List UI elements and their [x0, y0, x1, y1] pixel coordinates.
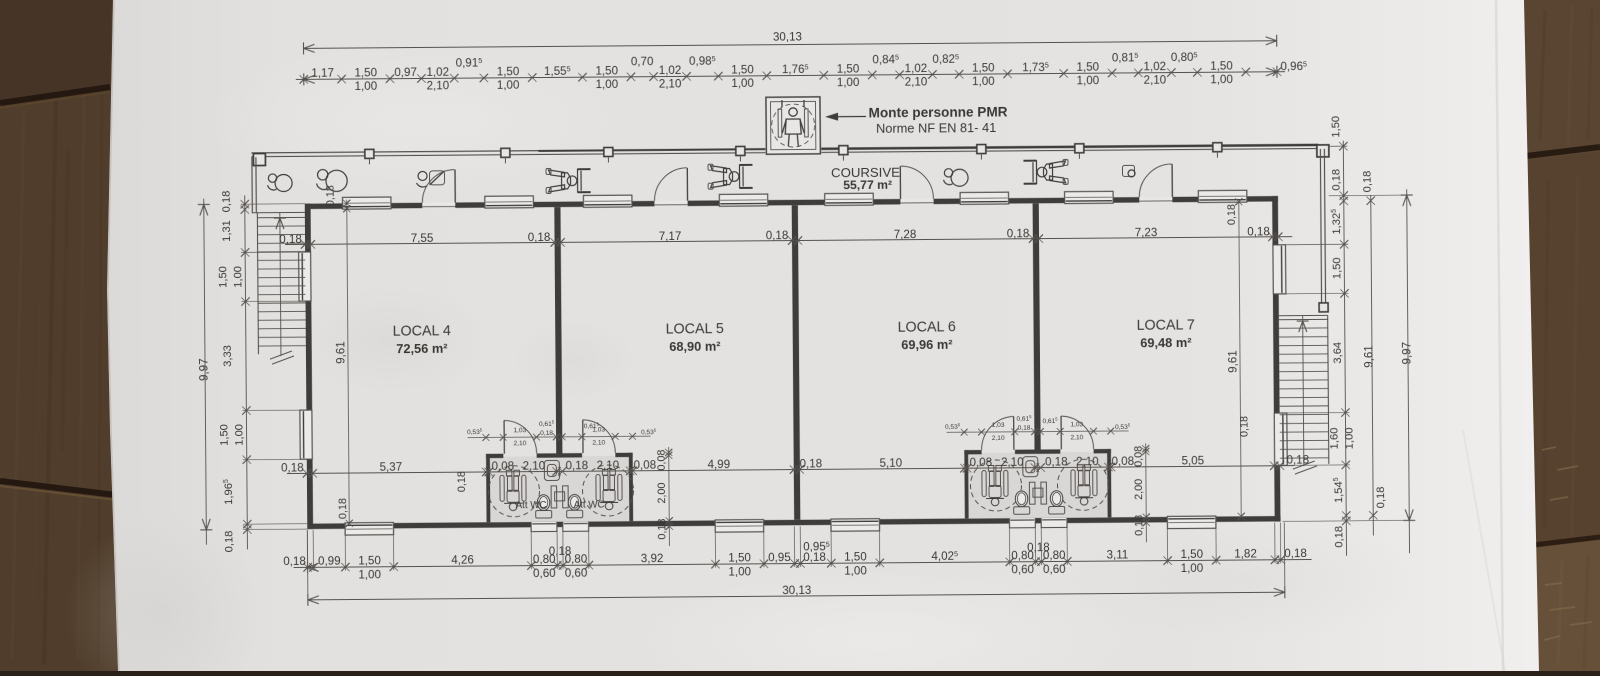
svg-text:0,95: 0,95 [768, 551, 791, 564]
svg-text:0,18: 0,18 [456, 471, 468, 492]
svg-text:1,02: 1,02 [426, 66, 449, 79]
svg-text:1,02: 1,02 [905, 62, 928, 75]
svg-text:9,97: 9,97 [197, 358, 210, 381]
svg-text:0,18: 0,18 [1018, 425, 1031, 432]
svg-text:0,08: 0,08 [491, 460, 514, 473]
svg-text:0,18: 0,18 [1247, 225, 1270, 238]
svg-text:2,10: 2,10 [992, 435, 1005, 442]
svg-text:1,00: 1,00 [1181, 562, 1204, 575]
svg-text:1,00: 1,00 [837, 76, 860, 89]
svg-text:1,02: 1,02 [1143, 60, 1166, 73]
svg-text:7,55: 7,55 [411, 232, 434, 245]
svg-text:Norme NF EN 81- 41: Norme NF EN 81- 41 [876, 120, 996, 136]
svg-text:0,60: 0,60 [1011, 563, 1034, 576]
svg-text:1,03: 1,03 [513, 427, 526, 434]
svg-text:1,50: 1,50 [217, 266, 229, 288]
svg-text:2,10: 2,10 [1144, 74, 1167, 87]
svg-text:0,18: 0,18 [1286, 453, 1309, 466]
svg-text:0,18: 0,18 [1133, 515, 1145, 536]
svg-text:1,03: 1,03 [592, 427, 605, 434]
svg-text:2,10: 2,10 [513, 440, 526, 447]
svg-text:1,50: 1,50 [358, 554, 381, 567]
svg-text:7,17: 7,17 [659, 230, 682, 243]
svg-text:0,18: 0,18 [549, 545, 572, 558]
svg-text:1,03: 1,03 [992, 422, 1005, 429]
svg-text:1,50: 1,50 [1331, 257, 1343, 279]
svg-text:0,18: 0,18 [656, 519, 668, 540]
svg-text:1,00: 1,00 [1077, 74, 1100, 87]
svg-text:0,18: 0,18 [1333, 526, 1345, 548]
svg-text:0,60: 0,60 [533, 567, 556, 580]
svg-text:55,77 m²: 55,77 m² [843, 178, 892, 192]
svg-text:2,10: 2,10 [1076, 455, 1099, 468]
svg-text:3,11: 3,11 [1107, 549, 1129, 562]
svg-text:1,50: 1,50 [1181, 548, 1204, 561]
svg-text:0,99: 0,99 [318, 555, 341, 568]
svg-text:Monte personne PMR: Monte personne PMR [869, 104, 1008, 120]
svg-text:0,18: 0,18 [799, 457, 822, 470]
svg-text:1,60: 1,60 [1329, 428, 1341, 450]
svg-text:2,10: 2,10 [592, 440, 605, 447]
svg-text:0,18: 0,18 [223, 531, 235, 553]
svg-text:69,48 m²: 69,48 m² [1140, 335, 1191, 350]
svg-text:LOCAL 6: LOCAL 6 [898, 319, 956, 335]
svg-text:5,10: 5,10 [879, 457, 902, 470]
svg-text:0,97: 0,97 [394, 66, 417, 79]
svg-text:1,00: 1,00 [1210, 73, 1233, 86]
svg-text:Att WC: Att WC [574, 500, 605, 511]
svg-text:72,56 m²: 72,56 m² [396, 341, 447, 356]
svg-text:9,61: 9,61 [1226, 350, 1239, 373]
svg-text:1,00: 1,00 [232, 266, 244, 288]
svg-text:3,33: 3,33 [222, 345, 234, 367]
svg-text:1,17: 1,17 [311, 67, 334, 80]
svg-text:0,18: 0,18 [1375, 487, 1387, 509]
svg-text:30,13: 30,13 [782, 584, 811, 597]
svg-text:1,50: 1,50 [1210, 60, 1233, 73]
svg-text:1,00: 1,00 [1344, 427, 1356, 449]
svg-text:0,18: 0,18 [1007, 227, 1030, 240]
svg-text:0,08: 0,08 [633, 458, 656, 471]
svg-text:1,50: 1,50 [1330, 116, 1342, 138]
svg-text:5,37: 5,37 [379, 460, 402, 473]
svg-text:1,31: 1,31 [221, 220, 233, 242]
svg-text:9,61: 9,61 [1362, 345, 1375, 368]
svg-text:2,10: 2,10 [659, 77, 682, 90]
svg-text:LOCAL 4: LOCAL 4 [393, 323, 451, 339]
svg-text:4,99: 4,99 [707, 458, 730, 471]
svg-text:2,10: 2,10 [1001, 456, 1024, 469]
svg-text:3,64: 3,64 [1332, 342, 1344, 364]
svg-text:2,10: 2,10 [522, 459, 545, 472]
svg-text:0,18: 0,18 [1362, 171, 1374, 193]
svg-text:30,13: 30,13 [773, 30, 802, 43]
svg-text:1,50: 1,50 [595, 65, 618, 78]
svg-text:0,18: 0,18 [1284, 547, 1307, 560]
svg-text:2,00: 2,00 [656, 483, 668, 504]
svg-text:0,18: 0,18 [337, 498, 349, 519]
svg-text:0,70: 0,70 [631, 55, 654, 68]
svg-text:5,05: 5,05 [1181, 454, 1204, 467]
svg-text:0,18: 0,18 [283, 555, 306, 568]
svg-text:0,08: 0,08 [1133, 446, 1145, 467]
svg-text:0,18: 0,18 [565, 459, 588, 472]
svg-text:7,23: 7,23 [1135, 226, 1158, 239]
svg-text:1,03: 1,03 [1070, 421, 1083, 428]
svg-text:0,18: 0,18 [1027, 541, 1050, 554]
svg-text:0,18: 0,18 [1045, 455, 1068, 468]
svg-text:0,18: 0,18 [281, 461, 304, 474]
svg-text:1,00: 1,00 [595, 78, 618, 91]
svg-text:1,50: 1,50 [972, 62, 995, 75]
svg-text:1,82: 1,82 [1234, 548, 1257, 561]
svg-text:Att WC: Att WC [516, 500, 547, 511]
svg-text:4,26: 4,26 [451, 554, 474, 567]
svg-text:69,96 m²: 69,96 m² [901, 337, 952, 352]
svg-text:0,18: 0,18 [221, 191, 233, 213]
svg-text:0,60: 0,60 [565, 567, 588, 580]
svg-text:1,50: 1,50 [837, 63, 860, 76]
svg-text:0,18: 0,18 [1238, 416, 1250, 437]
svg-text:1,00: 1,00 [497, 79, 520, 92]
svg-text:3,92: 3,92 [641, 552, 664, 565]
svg-text:1,00: 1,00 [233, 424, 245, 446]
svg-text:1,00: 1,00 [358, 568, 381, 581]
svg-text:1,50: 1,50 [844, 551, 867, 564]
svg-text:0,18: 0,18 [1226, 204, 1238, 225]
svg-text:0,18: 0,18 [325, 185, 337, 206]
svg-text:2,00: 2,00 [1133, 479, 1145, 500]
svg-text:1,00: 1,00 [728, 565, 751, 578]
svg-text:LOCAL 5: LOCAL 5 [666, 321, 724, 337]
svg-text:0,18: 0,18 [528, 231, 551, 244]
svg-text:0,18: 0,18 [766, 229, 789, 242]
svg-text:1,02: 1,02 [659, 64, 682, 77]
svg-text:0,18: 0,18 [279, 233, 302, 246]
svg-text:2,10: 2,10 [1070, 434, 1083, 441]
svg-text:1,50: 1,50 [731, 63, 754, 76]
svg-text:2,10: 2,10 [426, 79, 449, 92]
svg-text:0,08: 0,08 [969, 456, 992, 469]
svg-text:68,90 m²: 68,90 m² [669, 339, 720, 354]
svg-text:1,00: 1,00 [354, 80, 377, 93]
svg-text:0,08: 0,08 [1111, 455, 1134, 468]
svg-text:1,50: 1,50 [497, 65, 520, 78]
svg-text:1,50: 1,50 [1076, 61, 1099, 74]
svg-text:0,18: 0,18 [1331, 169, 1343, 191]
svg-text:7,28: 7,28 [894, 228, 917, 241]
svg-text:1,00: 1,00 [844, 564, 867, 577]
svg-text:0,08: 0,08 [656, 450, 668, 471]
svg-text:1,50: 1,50 [728, 551, 751, 564]
svg-text:2,10: 2,10 [905, 75, 928, 88]
svg-text:2,10: 2,10 [596, 459, 619, 472]
svg-text:1,50: 1,50 [354, 66, 377, 79]
svg-text:0,18: 0,18 [540, 430, 553, 437]
svg-text:1,00: 1,00 [972, 75, 995, 88]
svg-text:LOCAL 7: LOCAL 7 [1137, 317, 1195, 333]
svg-text:0,60: 0,60 [1043, 563, 1066, 576]
svg-text:9,61: 9,61 [334, 341, 347, 364]
svg-text:9,97: 9,97 [1400, 342, 1413, 365]
svg-text:1,00: 1,00 [731, 77, 754, 90]
svg-text:1,50: 1,50 [218, 424, 230, 446]
